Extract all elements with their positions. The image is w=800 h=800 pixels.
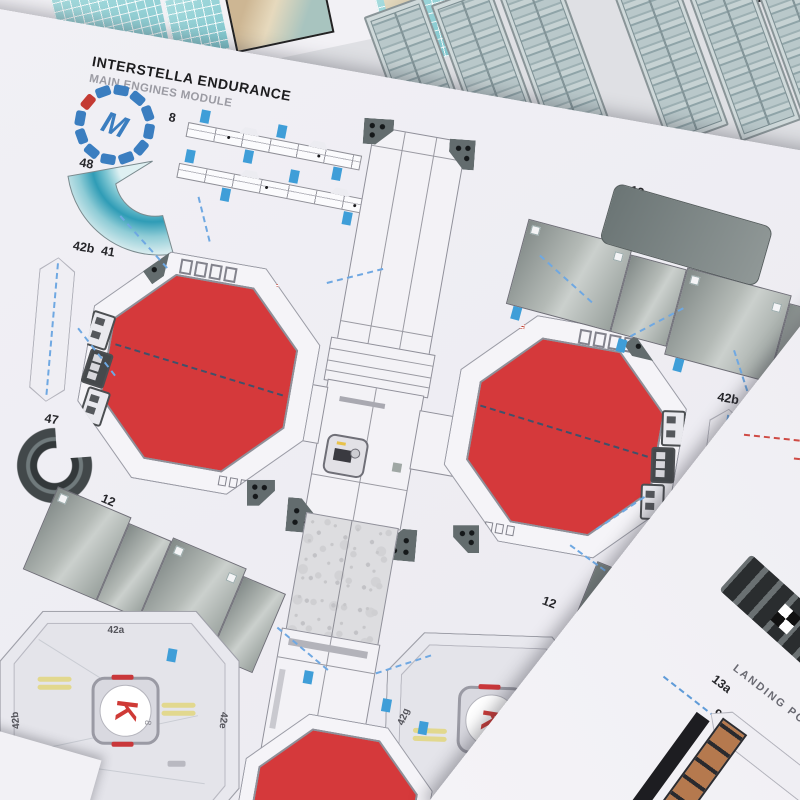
pad-yellow-stripes <box>162 703 196 708</box>
part-8-strip <box>176 163 375 216</box>
pad-k-marking: K 8 <box>92 677 160 745</box>
part-label-13a: 13a <box>709 672 734 696</box>
glue-tab <box>510 306 522 321</box>
pad-label-42b: 42b <box>10 711 23 729</box>
part-label-41: 41 <box>100 243 116 259</box>
part-13a-checker <box>719 554 800 695</box>
side-panel <box>661 410 686 447</box>
pad-label-42e: 42e <box>217 711 230 729</box>
corner-bracket <box>247 480 275 506</box>
svg-text:M: M <box>97 106 133 146</box>
red-dash-line <box>744 434 800 442</box>
glue-tab <box>672 358 684 373</box>
photo-of-papercraft-sheets: right parts of | 111 to 113a : 114 UP02 … <box>0 0 800 800</box>
k-letter: K <box>109 698 141 723</box>
pad-label-42a: 42a <box>108 625 125 636</box>
landing-label: LANDING PO <box>731 662 800 726</box>
column-hatch-panel <box>322 433 370 480</box>
k-sub-number: 8 <box>143 720 154 726</box>
red-dash-line <box>794 458 800 466</box>
dashed-line <box>198 197 211 242</box>
instruction-photo-model <box>223 0 334 53</box>
engine-face-left <box>66 240 332 506</box>
pad-yellow-stripes <box>38 677 72 682</box>
part-label-8: 8 <box>168 110 177 125</box>
part-42b-hexagon-left <box>28 256 77 404</box>
part-8-strip <box>186 122 363 170</box>
column-marble-panels <box>286 512 399 646</box>
corner-bracket <box>453 525 479 553</box>
side-panel <box>650 447 675 484</box>
part-label-42b: 42b <box>716 390 740 408</box>
us-flag-icon <box>513 320 526 329</box>
part-label-47: 47 <box>43 411 59 427</box>
part-label-12: 12 <box>540 594 558 612</box>
part-label-42b: 42b <box>72 239 96 257</box>
pad-t-mark <box>168 761 186 767</box>
